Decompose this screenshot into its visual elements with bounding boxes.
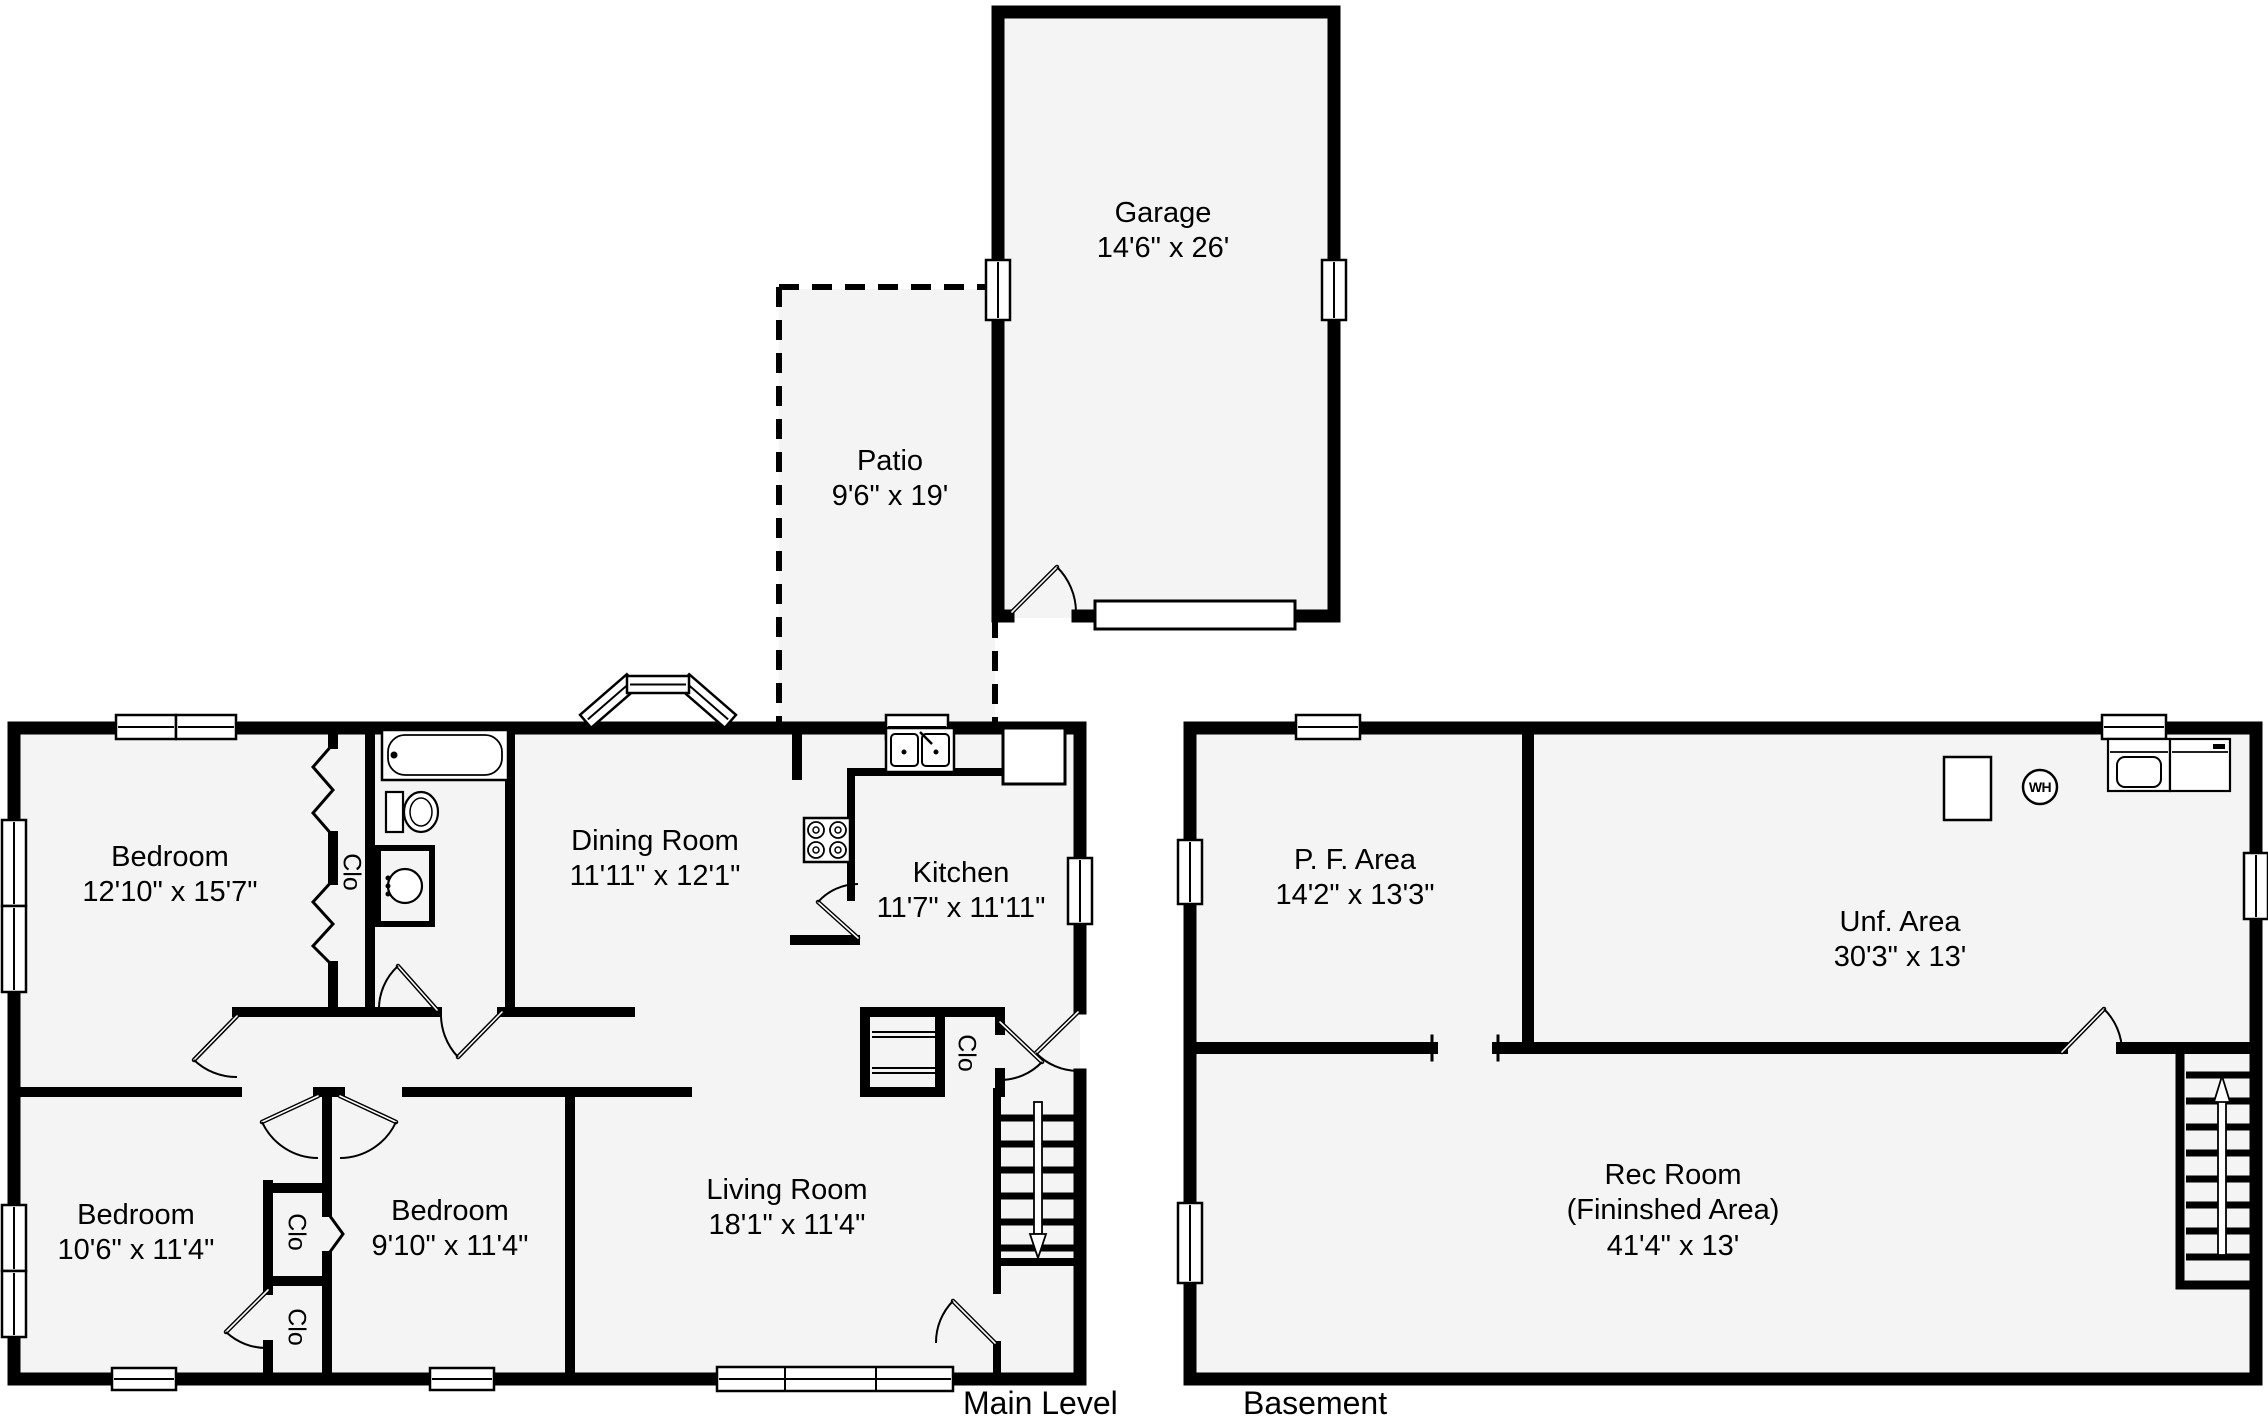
room-name: Garage — [1097, 196, 1230, 231]
toilet — [386, 792, 438, 832]
room-dims: 11'7" x 11'11" — [877, 891, 1046, 926]
floorplan: Garage 14'6" x 26' Patio 9'6" x 19' Bedr… — [0, 0, 2268, 1425]
window — [1178, 840, 1202, 904]
refrigerator — [1003, 728, 1065, 784]
window — [1322, 260, 1346, 320]
room-dims: 14'6" x 26' — [1097, 231, 1230, 266]
room-label-unf-area: Unf. Area 30'3" x 13' — [1834, 905, 1967, 976]
level-label-main: Main Level — [963, 1385, 1118, 1422]
room-label-living: Living Room 18'1" x 11'4" — [706, 1173, 867, 1244]
room-label-patio: Patio 9'6" x 19' — [832, 444, 949, 515]
room-name: Bedroom — [372, 1194, 529, 1229]
room-label-kitchen: Kitchen 11'7" x 11'11" — [877, 856, 1046, 927]
room-dims: 9'6" x 19' — [832, 479, 949, 514]
window — [2, 1271, 26, 1337]
room-dims: 41'4" x 13' — [1567, 1229, 1780, 1264]
laundry-tub — [2108, 739, 2170, 791]
room-dims: 10'6" x 11'4" — [58, 1233, 215, 1268]
room-name: Kitchen — [877, 856, 1046, 891]
window — [1068, 858, 1092, 924]
room-name: Unf. Area — [1834, 905, 1967, 940]
closet-label: Clo — [952, 1034, 981, 1072]
level-label-basement: Basement — [1243, 1385, 1387, 1422]
room-dims: 14'2" x 13'3" — [1275, 878, 1434, 913]
room-label-bedroom3: Bedroom 9'10" x 11'4" — [372, 1194, 529, 1265]
window — [2102, 715, 2166, 739]
room-label-bedroom2: Bedroom 10'6" x 11'4" — [58, 1198, 215, 1269]
window — [116, 715, 176, 739]
window — [2, 906, 26, 992]
room-dims: 30'3" x 13' — [1834, 940, 1967, 975]
window — [1296, 715, 1360, 739]
garage-door — [1095, 601, 1295, 629]
window — [2, 1205, 26, 1271]
window — [430, 1368, 494, 1390]
room-subtitle: (Fininshed Area) — [1567, 1193, 1780, 1228]
room-name: Living Room — [706, 1173, 867, 1208]
bay-window — [580, 674, 736, 728]
room-label-bedroom1: Bedroom 12'10" x 15'7" — [82, 840, 257, 911]
room-dims: 12'10" x 15'7" — [82, 875, 257, 910]
window — [986, 260, 1010, 320]
window — [176, 715, 236, 739]
room-name: Dining Room — [570, 824, 741, 859]
washer — [2170, 739, 2230, 791]
room-dims: 18'1" x 11'4" — [706, 1208, 867, 1243]
furnace — [1944, 757, 1991, 820]
room-dims: 9'10" x 11'4" — [372, 1229, 529, 1264]
window — [112, 1368, 176, 1390]
closet-label: Clo — [337, 853, 366, 891]
room-label-pf-area: P. F. Area 14'2" x 13'3" — [1275, 843, 1434, 914]
room-name: P. F. Area — [1275, 843, 1434, 878]
stove — [804, 818, 850, 862]
closet-label: Clo — [282, 1213, 311, 1251]
room-name: Bedroom — [58, 1198, 215, 1233]
stairs-down-arrow — [1034, 1102, 1042, 1234]
bathtub — [382, 730, 508, 780]
water-heater-label: WH — [2029, 779, 2051, 795]
room-name: Rec Room — [1567, 1158, 1780, 1193]
window — [2, 820, 26, 906]
room-dims: 11'11" x 12'1" — [570, 859, 741, 894]
room-name: Patio — [832, 444, 949, 479]
room-label-dining: Dining Room 11'11" x 12'1" — [570, 824, 741, 895]
room-name: Bedroom — [82, 840, 257, 875]
closet-label: Clo — [282, 1308, 311, 1346]
room-label-garage: Garage 14'6" x 26' — [1097, 196, 1230, 267]
kitchen-sink — [886, 728, 954, 772]
window — [2244, 853, 2268, 919]
stairs-up-arrow — [2218, 1100, 2226, 1255]
room-label-rec-room: Rec Room (Fininshed Area) 41'4" x 13' — [1567, 1158, 1780, 1264]
window — [1178, 1203, 1202, 1283]
window — [717, 1367, 953, 1391]
